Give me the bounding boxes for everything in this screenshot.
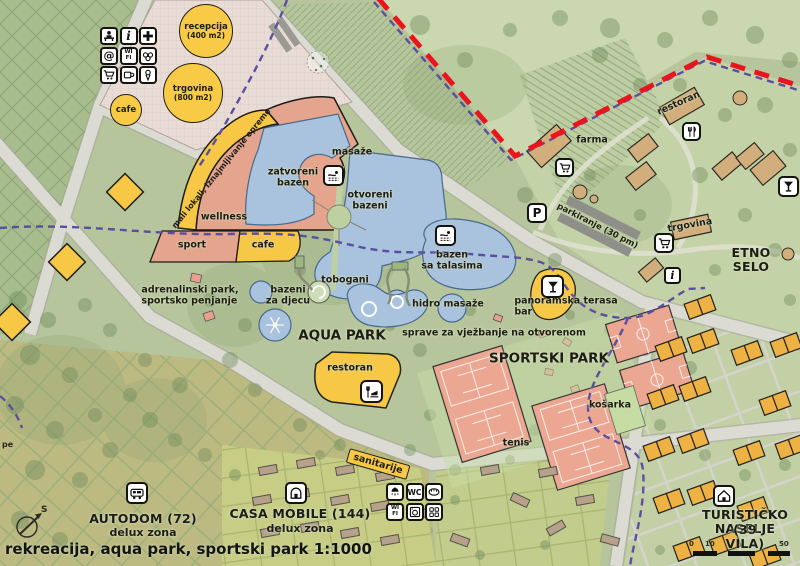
scale-bar — [693, 551, 790, 556]
cafe-label: cafe — [116, 106, 136, 115]
recepcija-sub: (400 m2) — [187, 32, 225, 40]
reception-desk-icon — [100, 27, 118, 45]
info-icon: i — [120, 27, 138, 45]
label-edge-partial: pe — [2, 440, 13, 449]
wifi-icon: WI FI — [120, 47, 138, 65]
restaurant-icon — [682, 122, 701, 141]
info-icon-etno: i — [664, 267, 681, 284]
bread-icon — [425, 483, 443, 501]
compass-north-label: S — [41, 505, 47, 515]
cocktail-icon-etno — [778, 176, 799, 197]
cafe-circle: cafe — [110, 94, 142, 126]
cart-icon-farma — [555, 158, 574, 177]
recepcija-circle: recepcija (400 m2) — [179, 4, 233, 58]
spiral-slide — [308, 281, 330, 303]
scale-tick-0: 0 — [689, 540, 694, 548]
wc-icon: WC — [406, 483, 424, 501]
cart-icon — [100, 66, 118, 84]
camper-icon — [126, 482, 148, 504]
cocktail-icon-terasa — [541, 275, 564, 298]
mobile-home-icon — [285, 482, 307, 504]
trgovina-sub: (800 m2) — [174, 94, 212, 102]
shower-icon — [386, 483, 404, 501]
bakery-icon — [139, 47, 157, 65]
first-aid-icon — [139, 27, 157, 45]
restoran-building — [315, 352, 401, 408]
site-plan-map: mali lokali, iznajmljivanje opreme zatvo… — [0, 0, 800, 566]
food-icon-restoran — [360, 380, 383, 403]
laundry-icon — [406, 503, 424, 521]
cart-icon-etno — [654, 233, 674, 253]
wifi-icon-sanitary: WI FI — [386, 503, 404, 521]
hidro-pool-1 — [438, 294, 466, 322]
villa-house-icon — [713, 485, 735, 507]
parking-icon: P — [527, 203, 547, 223]
scale-tick-10: 10 — [705, 540, 715, 548]
icecream-icon — [139, 66, 157, 84]
at-icon: @ — [100, 47, 118, 65]
trgovina-circle: trgovina (800 m2) — [163, 63, 223, 123]
dishwashing-icon — [425, 503, 443, 521]
scale-tick-50: 50 — [779, 540, 789, 548]
swimmer-icon — [323, 165, 344, 186]
wave-pool-swimmer-icon — [435, 225, 456, 246]
map-geometry — [0, 0, 800, 566]
cafe-cup-icon — [120, 66, 138, 84]
map-title: rekreacija, aqua park, sportski park 1:1… — [5, 540, 372, 558]
